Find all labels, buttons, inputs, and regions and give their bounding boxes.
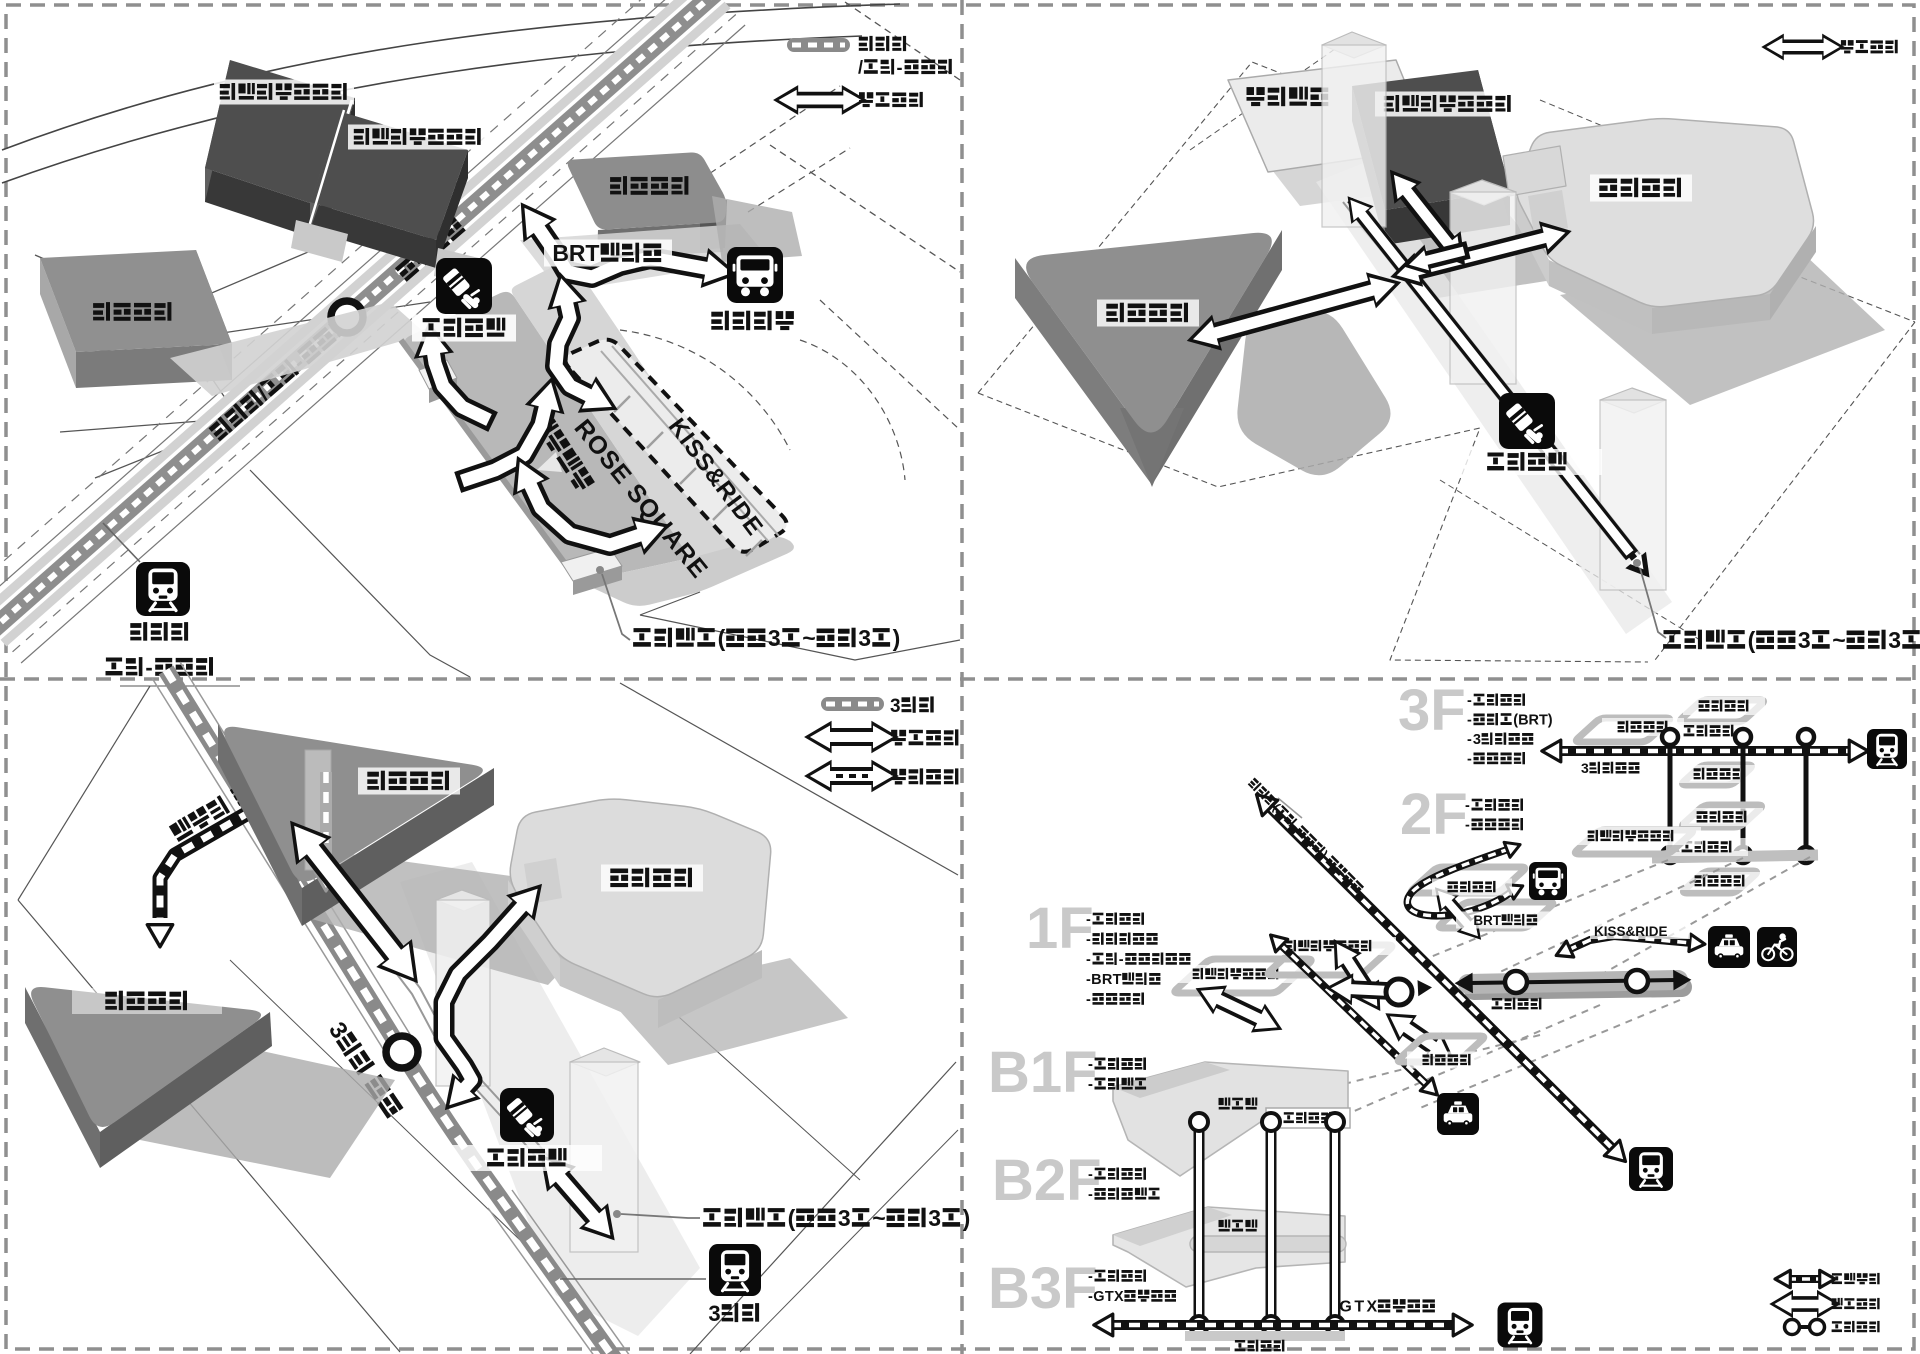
svg-text:~: ~ xyxy=(802,625,815,651)
svg-text:3: 3 xyxy=(768,625,781,651)
svg-text:-3: -3 xyxy=(1467,732,1481,748)
svg-text:B3F: B3F xyxy=(988,1256,1098,1321)
svg-text:3: 3 xyxy=(1798,627,1811,653)
svg-text:-GTX: -GTX xyxy=(1088,1289,1124,1305)
svg-text:1F: 1F xyxy=(1026,896,1094,961)
svg-text:~: ~ xyxy=(872,1205,885,1231)
svg-text:2F: 2F xyxy=(1400,782,1468,847)
svg-text:B1F: B1F xyxy=(988,1040,1098,1105)
svg-text:-: - xyxy=(1086,912,1091,928)
svg-text:3: 3 xyxy=(928,1205,941,1231)
svg-text:(BRT): (BRT) xyxy=(1513,713,1552,729)
svg-text:): ) xyxy=(893,625,901,651)
svg-text:-: - xyxy=(1088,1077,1093,1093)
svg-text:3: 3 xyxy=(858,625,871,651)
svg-text:B2F: B2F xyxy=(992,1148,1102,1213)
svg-text:-: - xyxy=(1467,752,1472,768)
svg-text:-: - xyxy=(1467,713,1472,729)
svg-text:-: - xyxy=(1119,952,1124,968)
svg-text:-: - xyxy=(1086,932,1091,948)
svg-text:-: - xyxy=(1088,1187,1093,1203)
svg-text:3: 3 xyxy=(890,696,901,717)
svg-text:3: 3 xyxy=(708,1301,720,1326)
svg-text:-: - xyxy=(1088,1167,1093,1183)
svg-text:-: - xyxy=(1088,1057,1093,1073)
svg-text:): ) xyxy=(963,1205,971,1231)
svg-text:-: - xyxy=(1086,952,1091,968)
svg-text:3: 3 xyxy=(1581,760,1589,776)
svg-text:-: - xyxy=(1088,1269,1093,1285)
svg-text:-: - xyxy=(1467,693,1472,709)
svg-text:-BRT: -BRT xyxy=(1086,972,1122,988)
svg-text:(: ( xyxy=(1748,627,1756,653)
svg-text:-: - xyxy=(1465,818,1470,834)
svg-text:3F: 3F xyxy=(1398,678,1466,743)
svg-text:/: / xyxy=(858,57,863,77)
svg-text:~: ~ xyxy=(1832,627,1845,653)
svg-text:(: ( xyxy=(788,1205,796,1231)
svg-text:GTX: GTX xyxy=(1339,1299,1377,1316)
svg-text:BRT: BRT xyxy=(552,240,599,266)
svg-text:KISS&RIDE: KISS&RIDE xyxy=(1594,924,1668,939)
svg-text:3: 3 xyxy=(1888,627,1901,653)
svg-text:BRT: BRT xyxy=(1473,913,1501,928)
svg-text:-: - xyxy=(145,655,152,680)
svg-text:-: - xyxy=(897,57,903,77)
svg-text:-: - xyxy=(1086,992,1091,1008)
svg-text:(: ( xyxy=(718,625,726,651)
svg-text:-: - xyxy=(1465,798,1470,814)
svg-text:3: 3 xyxy=(838,1205,851,1231)
